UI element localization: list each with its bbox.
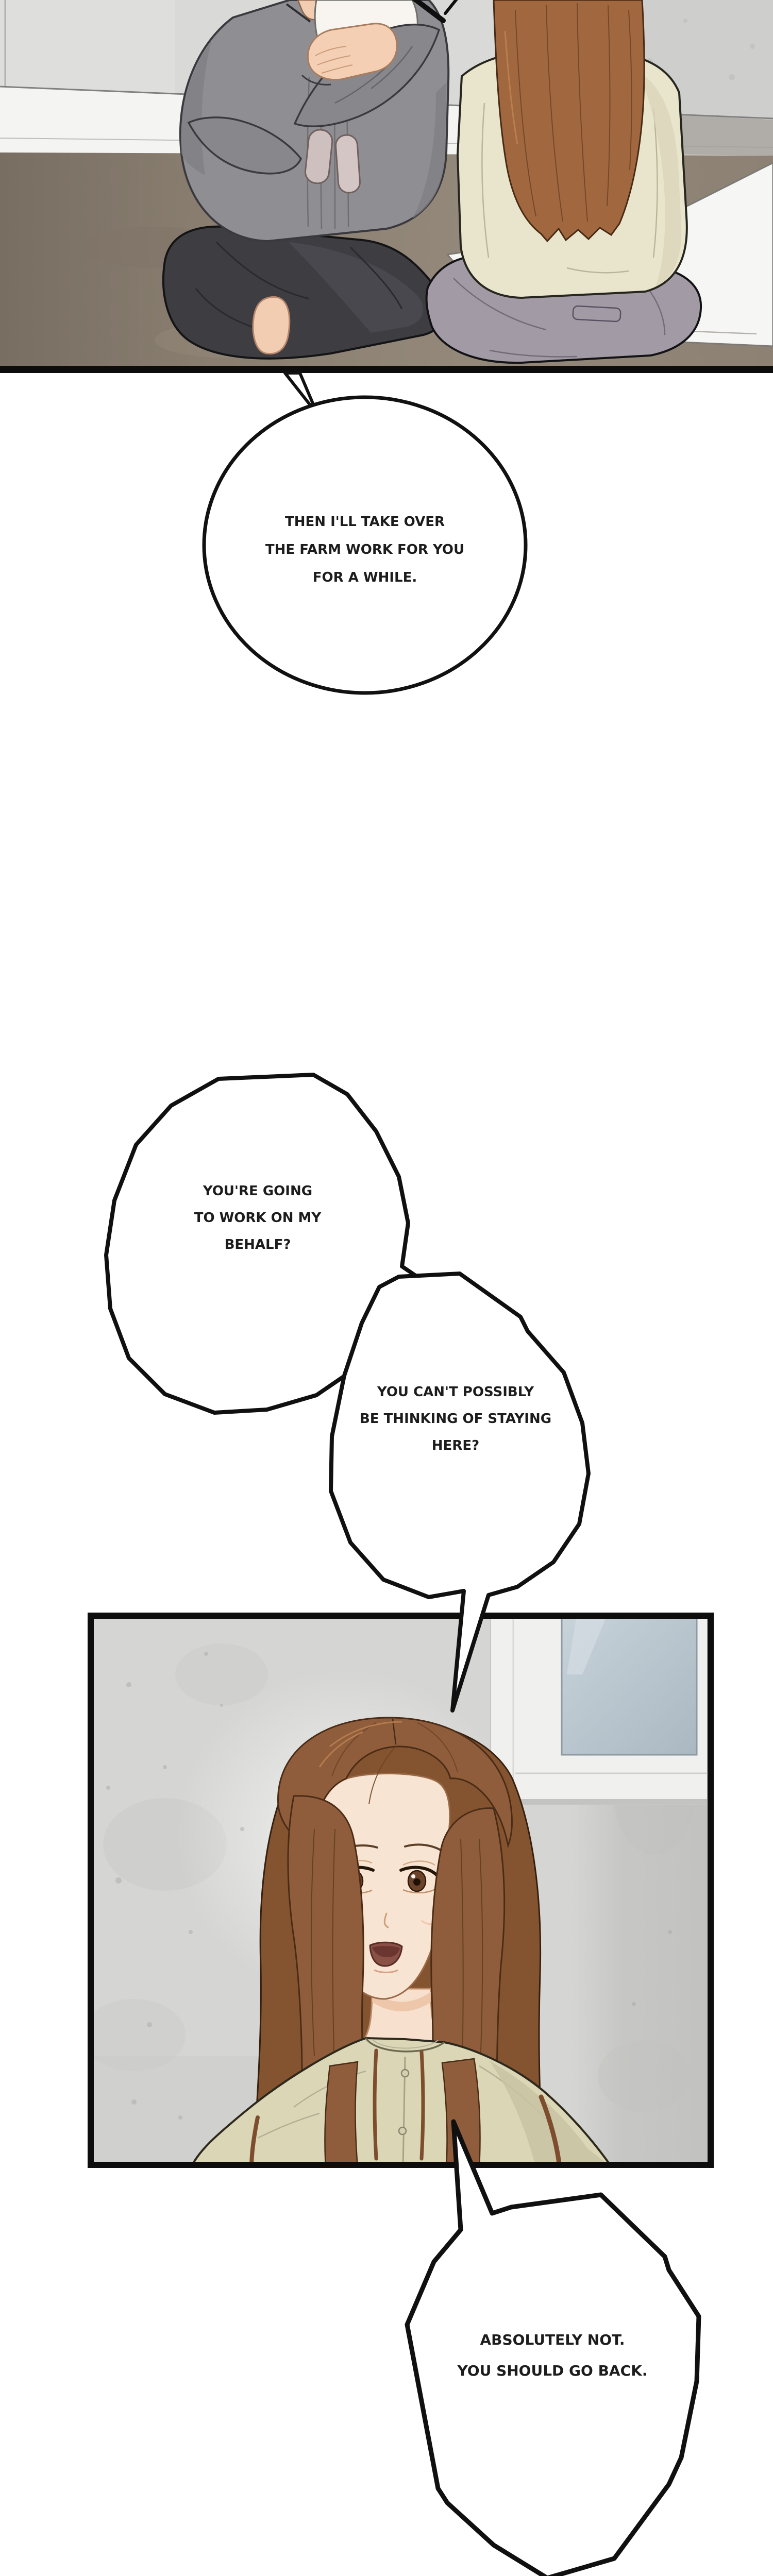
dialogue-line: BEHALF? [119, 1231, 397, 1258]
dialogue-line: HERE? [306, 1432, 605, 1459]
dialogue-line: YOU'RE GOING [119, 1178, 397, 1205]
dialogue-bubble-4: ABSOLUTELY NOT. YOU SHOULD GO BACK. [413, 2325, 692, 2386]
speech-bubbles-layer [0, 0, 773, 2576]
dialogue-bubble-3: YOU CAN'T POSSIBLY BE THINKING OF STAYIN… [306, 1379, 605, 1459]
dialogue-bubble-2: YOU'RE GOING TO WORK ON MY BEHALF? [119, 1178, 397, 1258]
floor-scene-art [0, 0, 773, 366]
dialogue-line: ABSOLUTELY NOT. [413, 2325, 692, 2355]
dialogue-line: YOU CAN'T POSSIBLY [306, 1379, 605, 1405]
dialogue-line: FOR A WHILE. [226, 564, 504, 591]
hair-strand-front-right [442, 2059, 480, 2168]
dialogue-line: YOU SHOULD GO BACK. [413, 2355, 692, 2386]
man-holding-cat [163, 0, 448, 359]
window [491, 1613, 708, 1804]
dialogue-line: TO WORK ON MY [119, 1205, 397, 1231]
dialogue-line: THEN I'LL TAKE OVER [226, 508, 504, 536]
webtoon-page: THEN I'LL TAKE OVER THE FARM WORK FOR YO… [0, 0, 773, 2576]
hair-strand-front-left [325, 2062, 358, 2168]
dialogue-line: THE FARM WORK FOR YOU [226, 536, 504, 564]
dialogue-line: BE THINKING OF STAYING [306, 1405, 605, 1432]
portrait-art [88, 1613, 714, 2168]
panel-floor-scene [0, 0, 773, 366]
bubble-tail [285, 373, 317, 414]
panel-woman-portrait [88, 1613, 714, 2168]
dialogue-bubble-1: THEN I'LL TAKE OVER THE FARM WORK FOR YO… [226, 508, 504, 591]
panel-bottom-border [0, 366, 773, 373]
bare-foot [253, 297, 290, 353]
